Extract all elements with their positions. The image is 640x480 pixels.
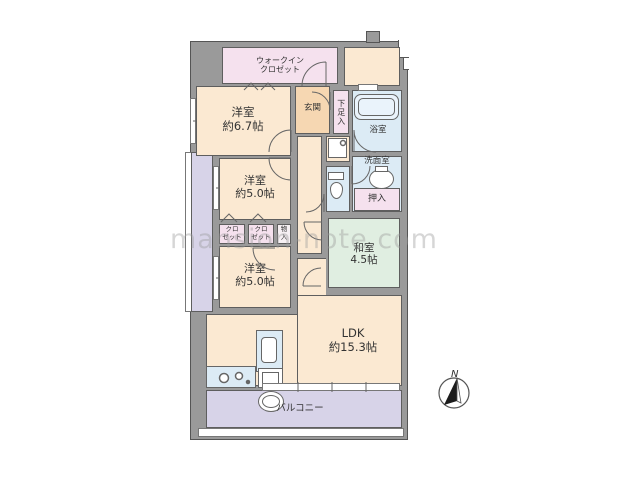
room-label-shoe-cabinet: 下足入 [333,92,349,132]
room-label-ldk: LDK 約15.3帖 [307,323,399,359]
compass-north-label: N [451,369,459,380]
washer-pan-icon [328,138,347,158]
room-label-closet-left: クロ ゼット [219,225,245,243]
window [190,98,196,144]
kitchen-counter [206,366,256,388]
toilet-tank-icon [328,172,344,180]
kitchen-sink-icon [261,337,277,363]
room-label-entrance: 玄関 [295,102,330,114]
room-label-bathroom: 浴室 [358,124,398,136]
washbasin-icon [369,169,394,189]
room-label-bedroom-5-0-lower: 洋室 約5.0帖 [219,260,291,292]
room-label-storage: 物 入 [277,225,291,243]
compass-icon: N [439,369,469,408]
room-upper-corridor [344,47,400,86]
corner-step-cut [403,58,409,70]
roof-tab [366,31,380,43]
room-label-washroom: 洗面室 [354,155,400,167]
side-alcove [191,152,213,312]
window [358,84,378,91]
room-label-closet-right: クロ ゼット [248,225,274,243]
floorplan-canvas: ウォークイン クロゼット 洋室 約6.7帖 玄関 下足入 浴室 洗面室 押入 洋… [0,0,640,480]
room-label-futon-closet: 押入 [356,192,398,207]
room-label-bedroom-5-0-middle: 洋室 約5.0帖 [219,172,291,204]
bathtub-icon [358,98,395,116]
hallway [297,136,322,254]
room-label-walk-in-closet: ウォークイン クロゼット [224,51,336,79]
room-label-balcony: バルコニー [250,402,350,416]
room-label-bedroom-6-7: 洋室 約6.7帖 [198,104,288,136]
sliding-window [262,383,400,391]
room-label-japanese: 和室 4.5帖 [330,238,398,270]
balcony-lip [198,428,404,437]
